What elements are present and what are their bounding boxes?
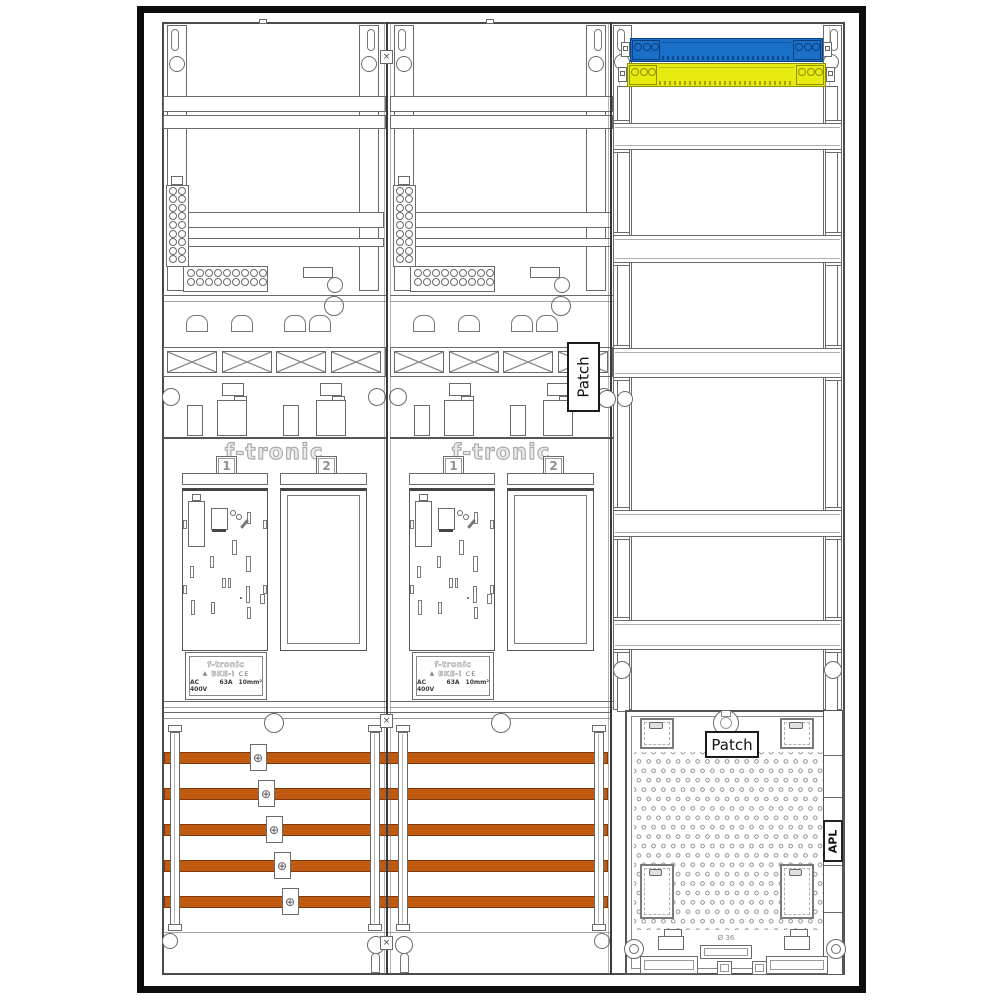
- line: [659, 67, 794, 68]
- busbar-clamp: ⊕: [282, 888, 299, 915]
- din-rail: [390, 115, 613, 129]
- strip-bracket: [530, 267, 560, 278]
- rail-terminal-hole: [631, 68, 639, 76]
- terminal-hole: [169, 230, 177, 238]
- mount-hole: [491, 713, 511, 733]
- rail-cap: [168, 725, 182, 732]
- terminal-hole: [405, 238, 413, 246]
- component: [192, 494, 201, 501]
- clamp: [320, 383, 342, 396]
- cabinet-drawing: Patch Patch APL Ø 36 f-tronic12f-tronic▲…: [0, 0, 1000, 1000]
- terminal-hole: [178, 212, 186, 220]
- dot: [467, 597, 469, 599]
- rail-terminal-hole: [640, 68, 648, 76]
- terminal-hole: [468, 278, 476, 286]
- busbar-clamp: ⊕: [258, 780, 275, 807]
- corner-dial-inner: [831, 944, 841, 954]
- terminal-hole: [450, 269, 458, 277]
- component-slot: [417, 566, 421, 578]
- truss-panel: [222, 351, 272, 373]
- terminal-hole: [187, 278, 195, 286]
- terminal-hole: [187, 269, 195, 277]
- post-inner: [720, 964, 729, 972]
- terminal-hole: [405, 247, 413, 255]
- divider-joint-icon: ×: [380, 714, 393, 728]
- line: [163, 295, 386, 296]
- line: [390, 295, 613, 296]
- seal-icon: [230, 510, 236, 516]
- nameplate-model: BKE-I: [211, 670, 235, 678]
- terminal-hole: [405, 221, 413, 229]
- patch-field-label-text: Patch: [575, 356, 593, 397]
- component-slot: [473, 586, 477, 603]
- terminal-box-inner: [644, 960, 694, 970]
- truss-panel: [167, 351, 217, 373]
- slot-number: 2: [545, 458, 562, 474]
- component-slot: [190, 566, 194, 578]
- bracket: [784, 936, 810, 950]
- terminal-hole: [196, 269, 204, 277]
- component-slot: [191, 600, 195, 615]
- line: [615, 645, 840, 646]
- line: [615, 373, 840, 374]
- terminal-hole: [477, 278, 485, 286]
- component-slot: [449, 578, 453, 588]
- nameplate-brand: f-tronic: [434, 660, 471, 669]
- cable-arch: [186, 315, 208, 332]
- component: [415, 501, 432, 547]
- corner-dial-inner: [629, 944, 639, 954]
- strip-bracket: [303, 267, 333, 278]
- clamp-hole: [327, 277, 343, 293]
- line: [615, 145, 840, 146]
- label-strip: [280, 473, 367, 485]
- terminal-hole: [169, 187, 177, 195]
- line: [615, 127, 840, 128]
- cable-diameter-label: Ø 36: [696, 934, 756, 943]
- rail-teeth: [659, 81, 794, 85]
- mount-hole: [264, 713, 284, 733]
- line: [390, 701, 613, 702]
- rail-cap: [396, 924, 410, 931]
- busbar-clamp: ⊕: [250, 744, 267, 771]
- mount-hole: [162, 388, 180, 406]
- rail-terminal-hole: [651, 43, 659, 51]
- component-slot: [260, 594, 265, 604]
- stub: [510, 405, 526, 436]
- rating-current: 63A: [220, 679, 233, 693]
- terminal-hole: [396, 221, 404, 229]
- terminal-hole: [432, 278, 440, 286]
- component-slot: [232, 540, 237, 555]
- terminal-hole: [441, 269, 449, 277]
- rail-terminal-hole: [795, 43, 803, 51]
- terminal-hole: [486, 278, 494, 286]
- rail-terminal-hole: [634, 43, 642, 51]
- terminal-hole: [477, 269, 485, 277]
- knockout-slot: [789, 869, 802, 876]
- mount-hole: [389, 388, 407, 406]
- bracket: [790, 929, 808, 937]
- terminal-hole: [205, 269, 213, 277]
- stub: [283, 405, 299, 436]
- terminal-hole: [178, 247, 186, 255]
- apl-label-text: APL: [827, 829, 840, 853]
- terminal-hole: [405, 187, 413, 195]
- clamp-hole: [551, 296, 571, 316]
- patch-panel-label-text: Patch: [711, 736, 752, 754]
- busbar-support-rail: [370, 732, 380, 925]
- component: [212, 529, 226, 532]
- terminal-hole: [214, 269, 222, 277]
- ce-mark: CE: [466, 670, 477, 678]
- rail-terminal-hole: [815, 68, 823, 76]
- truss-panel: [331, 351, 381, 373]
- rating-section: 10mm²: [466, 679, 489, 693]
- knockout-slot: [649, 722, 663, 729]
- nameplate-inner: f-tronic▲BKE-ICEAC 400V63A10mm²: [416, 656, 490, 696]
- component-slot: [247, 607, 251, 619]
- window-inner-frame: [514, 495, 587, 644]
- stub: [187, 405, 203, 436]
- component: [419, 494, 428, 501]
- component-slot: [210, 556, 214, 568]
- seal-icon: [457, 510, 463, 516]
- terminal-hole: [405, 204, 413, 212]
- truss-panel: [503, 351, 553, 373]
- rail-cap: [396, 725, 410, 732]
- terminal-hole: [396, 230, 404, 238]
- component-slot: [410, 520, 414, 529]
- terminal-hole: [250, 269, 258, 277]
- rating-voltage: AC 400V: [190, 679, 214, 693]
- cable-arch: [400, 953, 409, 973]
- line: [390, 301, 613, 302]
- terminal-hole: [459, 269, 467, 277]
- line: [390, 707, 613, 708]
- line: [163, 437, 386, 439]
- terminal-hole: [405, 255, 413, 263]
- component-slot: [459, 540, 464, 555]
- top-tab: [259, 19, 267, 24]
- stub: [414, 405, 430, 436]
- knockout-slot: [649, 869, 662, 876]
- dot: [240, 597, 242, 599]
- line: [163, 701, 386, 702]
- component-slot: [455, 578, 458, 588]
- component-slot: [437, 556, 441, 568]
- terminal-hole: [178, 187, 186, 195]
- component-slot: [438, 602, 442, 614]
- line: [374, 734, 375, 923]
- brand-logo: f-tronic: [390, 441, 613, 463]
- terminal-hole: [432, 269, 440, 277]
- nameplate-row: ▲BKE-ICE: [430, 670, 477, 678]
- terminal-hole: [396, 204, 404, 212]
- terminal-hole: [178, 195, 186, 203]
- line: [824, 912, 842, 913]
- din-rail: [187, 238, 384, 247]
- truss-panel: [394, 351, 444, 373]
- clamp: [449, 383, 471, 396]
- rail-terminal-hole: [804, 43, 812, 51]
- terminal-hole: [169, 221, 177, 229]
- clamp-hole: [324, 296, 344, 316]
- line: [384, 22, 385, 975]
- line: [608, 22, 609, 975]
- label-strip: [182, 473, 268, 485]
- terminal-hole: [414, 269, 422, 277]
- line: [615, 258, 840, 259]
- clamp-detail: [620, 71, 625, 76]
- terminal-hole: [241, 269, 249, 277]
- terminal-hole: [223, 269, 231, 277]
- terminal-hole: [223, 278, 231, 286]
- line: [598, 734, 599, 923]
- component-slot: [228, 578, 231, 588]
- slot-number: 1: [218, 458, 235, 474]
- terminal-hole: [468, 269, 476, 277]
- terminal-hole: [250, 278, 258, 286]
- component: [438, 508, 455, 530]
- rail-hole: [169, 56, 185, 72]
- stub: [444, 400, 474, 436]
- rail-hole: [361, 56, 377, 72]
- rating-voltage: AC 400V: [417, 679, 441, 693]
- terminal-hole: [414, 278, 422, 286]
- rail-hole: [613, 661, 631, 679]
- apl-label: APL: [823, 820, 843, 862]
- cable-arch: [231, 315, 253, 332]
- cable-arch: [309, 315, 331, 332]
- component-slot: [183, 520, 187, 529]
- ce-mark: CE: [239, 670, 250, 678]
- busbar-support-rail: [398, 732, 408, 925]
- rail-cap: [368, 924, 382, 931]
- gland-hole-inner: [720, 717, 732, 729]
- nameplate-brand: f-tronic: [207, 660, 244, 669]
- post-inner: [755, 964, 764, 972]
- brand-mark-icon: ▲: [203, 670, 208, 677]
- nameplate-model: BKE-I: [438, 670, 462, 678]
- rail-terminal-hole: [807, 68, 815, 76]
- terminal-box-inner: [770, 960, 824, 970]
- rail-slot: [594, 29, 602, 51]
- line: [390, 22, 391, 975]
- stack-stub: [171, 176, 183, 185]
- rail-cap: [592, 725, 606, 732]
- terminal-hole: [178, 238, 186, 246]
- busbar-clamp: ⊕: [274, 852, 291, 879]
- component-slot: [183, 585, 187, 594]
- line: [615, 532, 840, 533]
- rating-current: 63A: [447, 679, 460, 693]
- top-tab: [486, 19, 494, 24]
- seal-icon: [236, 514, 242, 520]
- terminal-hole: [405, 195, 413, 203]
- component: [188, 501, 205, 547]
- truss-panel: [449, 351, 499, 373]
- slot-number: 1: [445, 458, 462, 474]
- terminal-hole: [423, 269, 431, 277]
- mount-hole: [395, 936, 413, 954]
- mount-hole: [598, 390, 616, 408]
- terminal-hole: [486, 269, 494, 277]
- field-divider: [386, 22, 388, 975]
- component-slot: [418, 600, 422, 615]
- din-rail: [414, 238, 611, 247]
- busbar-support-rail: [594, 732, 604, 925]
- clamp-detail: [623, 46, 628, 51]
- nameplate-ratings: AC 400V63A10mm²: [190, 679, 262, 693]
- din-rail: [163, 115, 386, 129]
- component-slot: [246, 586, 250, 603]
- patch-panel-label: Patch: [705, 731, 759, 758]
- terminal-hole: [259, 269, 267, 277]
- component-slot: [474, 607, 478, 619]
- component-slot: [263, 585, 267, 594]
- knockout-slot: [789, 722, 803, 729]
- cable-arch: [536, 315, 558, 332]
- rail-hole: [588, 56, 604, 72]
- terminal-hole: [396, 247, 404, 255]
- din-rail: [163, 96, 386, 112]
- rail-cap: [592, 924, 606, 931]
- component-slot: [222, 578, 226, 588]
- rail-terminal-hole: [648, 68, 656, 76]
- terminal-hole: [178, 221, 186, 229]
- rail-cap: [168, 924, 182, 931]
- rail-terminal-hole: [643, 43, 651, 51]
- nameplate-row: ▲BKE-ICE: [203, 670, 250, 678]
- component-slot: [410, 585, 414, 594]
- component-slot: [211, 602, 215, 614]
- terminal-hole: [259, 278, 267, 286]
- divider-joint-icon: ×: [380, 936, 393, 950]
- clamp-detail: [825, 46, 830, 51]
- stub: [316, 400, 346, 436]
- slot-number: 2: [318, 458, 335, 474]
- component-slot: [490, 585, 494, 594]
- field-divider: [610, 22, 612, 975]
- component-slot: [263, 520, 267, 529]
- divider-joint-icon: ×: [380, 50, 393, 64]
- component: [211, 508, 228, 530]
- component-slot: [246, 556, 251, 572]
- line: [662, 42, 791, 43]
- din-rail: [414, 212, 611, 228]
- terminal-hole: [396, 187, 404, 195]
- terminal-hole: [196, 278, 204, 286]
- line: [824, 755, 842, 756]
- bracket: [664, 929, 682, 937]
- component-slot: [487, 594, 492, 604]
- terminal-hole: [450, 278, 458, 286]
- brand-logo: f-tronic: [163, 441, 386, 463]
- din-rail: [187, 212, 384, 228]
- terminal-hole: [423, 278, 431, 286]
- clamp-hole: [554, 277, 570, 293]
- rail-terminal-hole: [798, 68, 806, 76]
- label-strip: [507, 473, 594, 485]
- component-slot: [473, 556, 478, 572]
- rail-hole: [824, 661, 842, 679]
- stack-stub: [398, 176, 410, 185]
- cable-arch: [413, 315, 435, 332]
- line: [615, 514, 840, 515]
- rail-hole: [396, 56, 412, 72]
- cable-arch: [458, 315, 480, 332]
- terminal-hole: [232, 278, 240, 286]
- stub: [217, 400, 247, 436]
- terminal-hole: [214, 278, 222, 286]
- terminal-hole: [459, 278, 467, 286]
- brand-mark-icon: ▲: [430, 670, 435, 677]
- rail-slot: [398, 29, 406, 51]
- busbar-support-rail: [170, 732, 180, 925]
- terminal-hole: [169, 204, 177, 212]
- rail-slot: [367, 29, 375, 51]
- din-rail: [390, 96, 613, 112]
- line: [824, 797, 842, 798]
- terminal-hole: [241, 278, 249, 286]
- terminal-hole: [232, 269, 240, 277]
- truss-panel: [276, 351, 326, 373]
- mount-hole: [162, 933, 178, 949]
- mount-hole: [617, 391, 633, 407]
- seal-icon: [463, 514, 469, 520]
- terminal-hole: [178, 230, 186, 238]
- terminal-hole: [178, 204, 186, 212]
- cable-arch: [511, 315, 533, 332]
- patch-field-label: Patch: [567, 342, 600, 412]
- label-strip: [409, 473, 495, 485]
- rail-slot: [171, 29, 179, 51]
- terminal-hole: [441, 278, 449, 286]
- clamp: [547, 383, 569, 396]
- component: [439, 529, 453, 532]
- component-slot: [490, 520, 494, 529]
- nameplate-ratings: AC 400V63A10mm²: [417, 679, 489, 693]
- window-inner-frame: [287, 495, 360, 644]
- terminal-hole: [205, 278, 213, 286]
- line: [615, 352, 840, 353]
- line: [402, 734, 403, 923]
- terminal-hole: [169, 247, 177, 255]
- nameplate-inner: f-tronic▲BKE-ICEAC 400V63A10mm²: [189, 656, 263, 696]
- rail-teeth: [662, 56, 791, 60]
- line: [824, 865, 842, 866]
- cable-box-inner: [704, 948, 748, 956]
- terminal-hole: [405, 212, 413, 220]
- clamp: [222, 383, 244, 396]
- line: [615, 624, 840, 625]
- cable-arch: [284, 315, 306, 332]
- line: [390, 437, 613, 439]
- busbar-clamp: ⊕: [266, 816, 283, 843]
- line: [163, 707, 386, 708]
- terminal-hole: [405, 230, 413, 238]
- rating-section: 10mm²: [239, 679, 262, 693]
- line: [163, 301, 386, 302]
- line: [615, 239, 840, 240]
- line: [174, 734, 175, 923]
- clamp-detail: [828, 71, 833, 76]
- bracket: [658, 936, 684, 950]
- terminal-hole: [178, 255, 186, 263]
- cable-arch: [371, 953, 380, 973]
- rail-terminal-hole: [812, 43, 820, 51]
